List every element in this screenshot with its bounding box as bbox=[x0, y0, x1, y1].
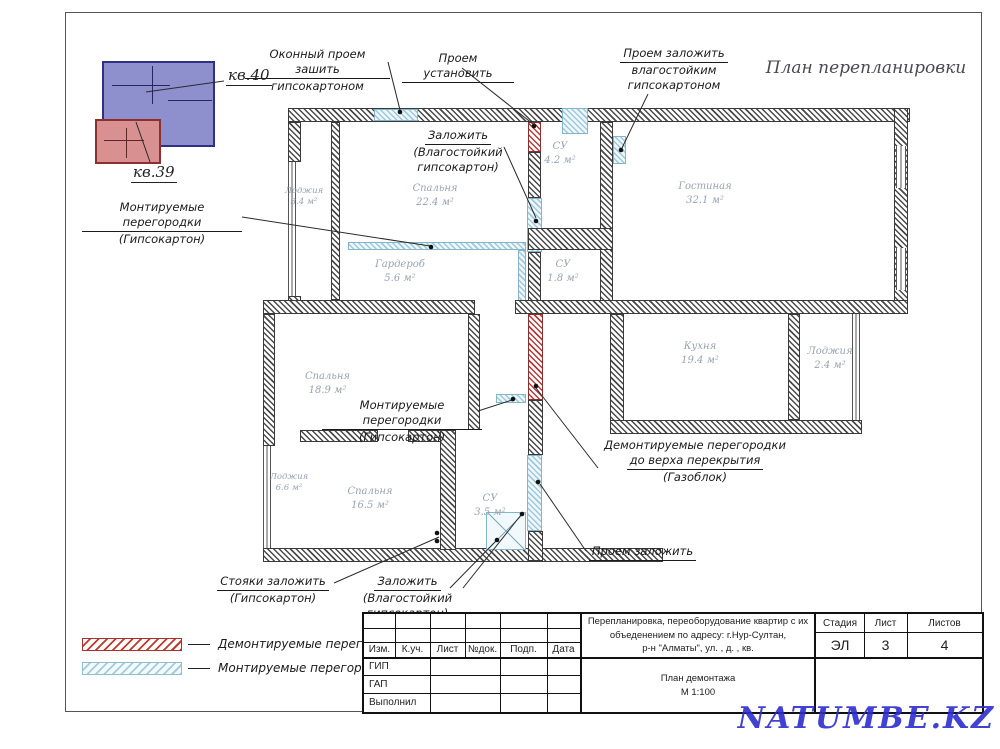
col-podp: Подп. bbox=[500, 642, 547, 657]
sheet-label: Лист bbox=[864, 614, 907, 632]
annotation-opening-close: Проем заложить bbox=[585, 544, 700, 561]
watermark: NATUMBE.KZ bbox=[700, 701, 995, 736]
annotation-line: Проем заложить bbox=[589, 544, 696, 561]
annotation-line: Заложить bbox=[374, 574, 440, 591]
sheet-value: 3 bbox=[864, 632, 907, 657]
project-line: объеденением по адресу: г.Нур-Султан, bbox=[610, 629, 786, 643]
project-line: Перепланировка, переоборудование квартир… bbox=[588, 615, 808, 629]
titleblock-line bbox=[364, 628, 580, 629]
role-exec: Выполнил bbox=[364, 693, 430, 712]
annotation-line: влагостойким bbox=[632, 63, 717, 77]
annotation-line: Стояки заложить bbox=[217, 574, 329, 591]
annotation-line: до верха перекрытия bbox=[627, 453, 764, 470]
annotation-line: (Гипсокартон) bbox=[119, 232, 205, 246]
drawing-sheet: План перепланировки кв.40 кв.39 bbox=[0, 0, 1000, 749]
annotation-line: Проем заложить bbox=[620, 46, 727, 63]
annotation-line: Заложить bbox=[425, 128, 491, 145]
role-gip: ГИП bbox=[364, 657, 430, 675]
annotation-line: (Гипсокартон) bbox=[359, 430, 445, 444]
role-gap: ГАП bbox=[364, 675, 430, 693]
annotation-line: гипсокартоном bbox=[271, 79, 364, 93]
col-izm: Изм. bbox=[364, 642, 395, 657]
apartment-39-label: кв.39 bbox=[131, 163, 177, 181]
annotation-line: Монтируемые перегородки bbox=[82, 200, 242, 232]
annotation-window-close: Оконный проем зашить гипсокартоном bbox=[245, 47, 390, 94]
annotation-line: Монтируемые перегородки bbox=[322, 398, 482, 430]
project-line: р-н "Алматы", ул. , д. , кв. bbox=[642, 642, 754, 656]
annotation-line: (Гипсокартон) bbox=[230, 591, 316, 605]
doc-title: План демонтажа bbox=[661, 672, 736, 686]
annotation-demount-gas: Демонтируемые перегородки до верха перек… bbox=[595, 438, 795, 485]
annotation-line: гипсокартон) bbox=[417, 160, 498, 174]
col-list: Лист bbox=[430, 642, 465, 657]
annotation-mount-mid: Монтируемые перегородки (Гипсокартон) bbox=[322, 398, 482, 445]
annotation-line: Оконный проем зашить bbox=[245, 47, 390, 79]
sheets-label: Листов bbox=[907, 614, 982, 632]
col-ndok: №док. bbox=[465, 642, 500, 657]
annotation-line: (Влагостойкий bbox=[413, 145, 502, 159]
annotation-mount-left: Монтируемые перегородки (Гипсокартон) bbox=[82, 200, 242, 247]
stage-label: Стадия bbox=[816, 614, 864, 632]
annotation-risers-close: Стояки заложить (Гипсокартон) bbox=[208, 574, 338, 606]
doc-scale: М 1:100 bbox=[681, 686, 715, 700]
annotation-line: (Газоблок) bbox=[663, 470, 727, 484]
annotation-line: гипсокартоном bbox=[628, 78, 721, 92]
annotation-opening-close-wet: Проем заложить влагостойким гипсокартоно… bbox=[618, 46, 730, 93]
annotation-close-wet-upper: Заложить (Влагостойкий гипсокартон) bbox=[408, 128, 508, 175]
apartment-39-label-text: кв.39 bbox=[131, 163, 177, 183]
stage-value: ЭЛ bbox=[816, 632, 864, 657]
annotation-line: Проем установить bbox=[402, 51, 514, 83]
annotation-line: Демонтируемые перегородки bbox=[604, 438, 786, 452]
project-description: Перепланировка, переоборудование квартир… bbox=[582, 614, 814, 657]
title-block: Изм. К.уч. Лист №док. Подп. Дата ГИП ГАП… bbox=[362, 612, 984, 714]
col-data: Дата bbox=[547, 642, 580, 657]
sheets-value: 4 bbox=[907, 632, 982, 657]
col-kuch: К.уч. bbox=[395, 642, 430, 657]
annotation-opening-install: Проем установить bbox=[402, 51, 514, 83]
